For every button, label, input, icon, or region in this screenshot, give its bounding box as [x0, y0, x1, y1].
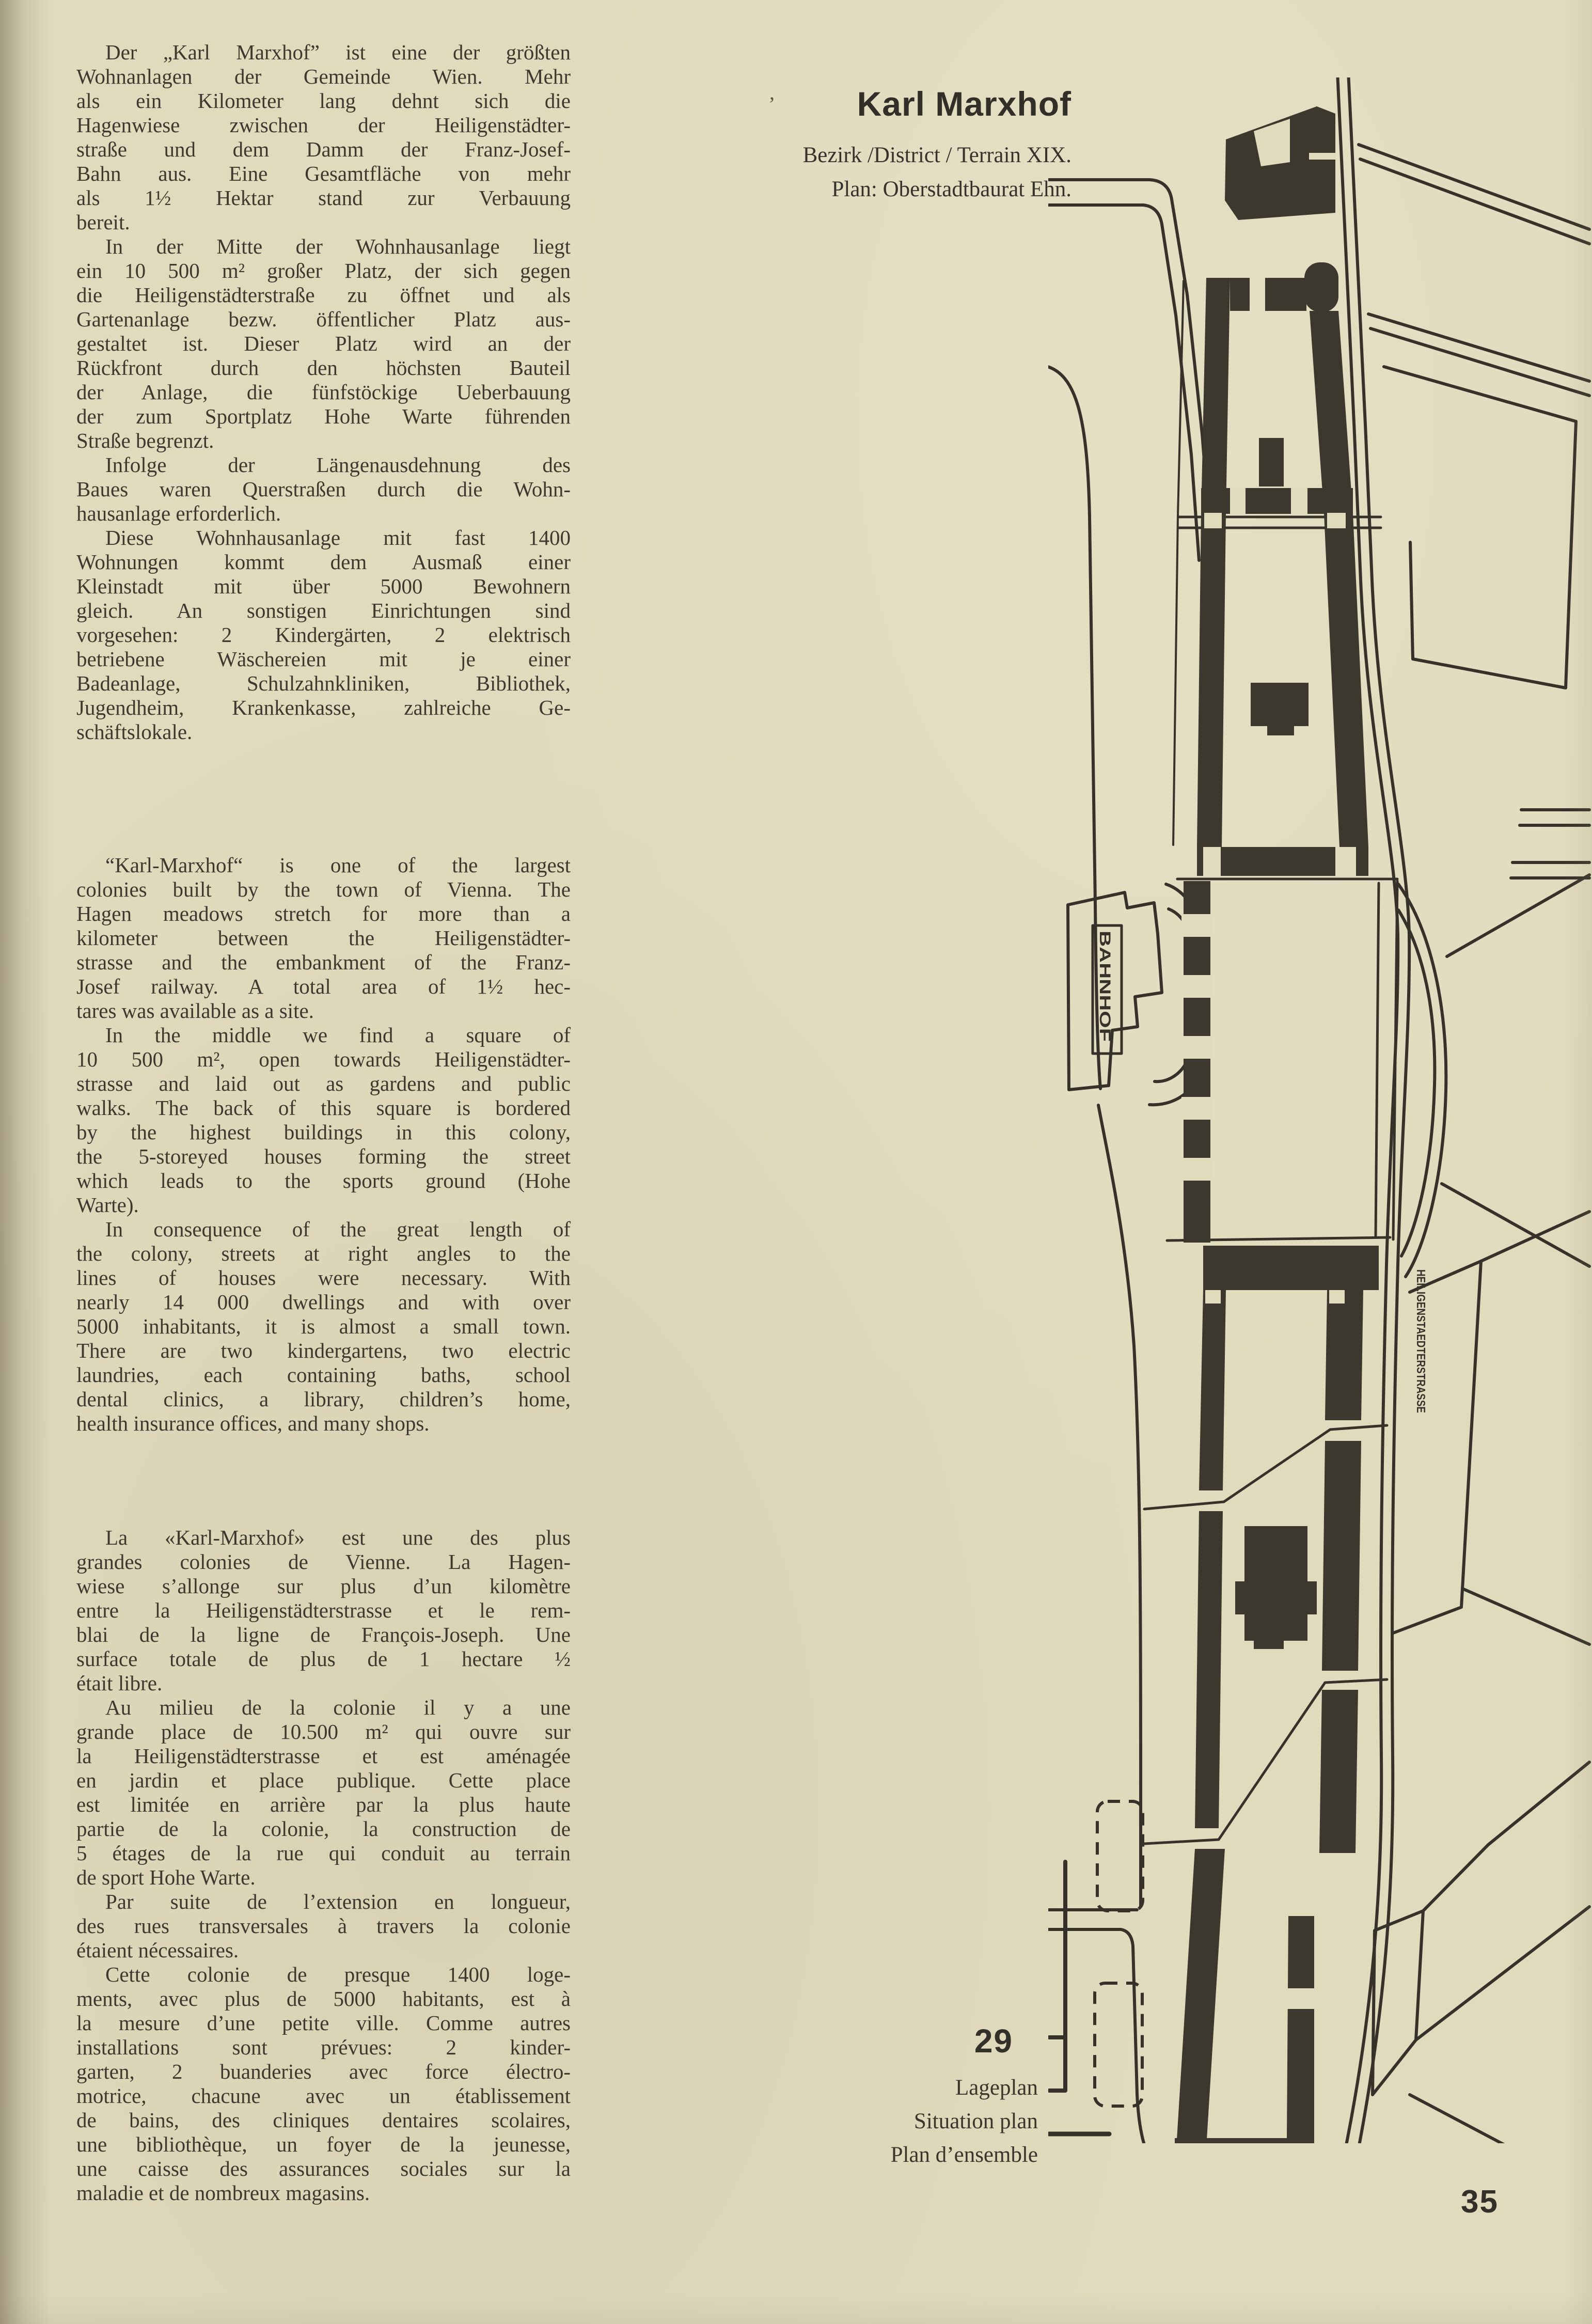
text-line: partie de la colonie, la construction de: [76, 1817, 571, 1841]
text-line: blai de la ligne de François-Joseph. Une: [76, 1623, 571, 1647]
text-block-french: La «Karl-Marxhof» est une des plusgrande…: [76, 1526, 571, 2205]
text-line: tares was available as a site.: [76, 999, 571, 1023]
text-line: wiese s’allonge sur plus d’un kilomètre: [76, 1574, 571, 1598]
karl-marx-hof-buildings: [1173, 106, 1379, 2143]
page-number: 35: [1363, 2184, 1499, 2220]
figure-number: 29: [775, 2024, 1013, 2058]
text-line: Bahn aus. Eine Gesamtfläche von mehr: [76, 162, 571, 186]
text-line: In consequence of the great length of: [76, 1217, 571, 1242]
station-label: BAHNHOF: [1096, 931, 1113, 1042]
text-line: Straße begrenzt.: [76, 429, 571, 453]
text-line: Josef railway. A total area of 1½ hec-: [76, 975, 571, 999]
text-line: garten, 2 buanderies avec force électro-: [76, 2060, 571, 2084]
text-line: ein 10 500 m² großer Platz, der sich geg…: [76, 259, 571, 283]
text-line: vorgesehen: 2 Kindergärten, 2 elektrisch: [76, 623, 571, 647]
header-district-line: Bezirk /District / Terrain XIX.: [671, 138, 1071, 172]
text-line: installations sont prévues: 2 kinder-: [76, 2035, 571, 2060]
text-line: hausanlage erforderlich.: [76, 501, 571, 526]
text-line: entre la Heiligenstädterstrasse et le re…: [76, 1598, 571, 1623]
text-line: surface totale de plus de 1 hectare ½: [76, 1647, 571, 1671]
text-line: Wohnungen kommt dem Ausmaß einer: [76, 550, 571, 574]
text-line: gleich. An sonstigen Einrichtungen sind: [76, 599, 571, 623]
text-line: betriebene Wäschereien mit je einer: [76, 647, 571, 671]
text-line: walks. The back of this square is border…: [76, 1096, 571, 1120]
text-line: der Anlage, die fünfstöckige Ueberbauung: [76, 380, 571, 404]
text-line: 5000 inhabitants, it is almost a small t…: [76, 1314, 571, 1339]
text-line: la Heiligenstädterstrasse et est aménagé…: [76, 1744, 571, 1768]
caption-bracket: [1048, 1862, 1109, 2134]
text-line: des rues transversales à travers la colo…: [76, 1914, 571, 1938]
text-line: étaient nécessaires.: [76, 1938, 571, 1962]
caption-line-fr: Plan d’ensemble: [775, 2138, 1038, 2172]
text-line: Au milieu de la colonie il y a une: [76, 1695, 571, 1720]
text-line: Rückfront durch den höchsten Bauteil: [76, 356, 571, 380]
text-line: schäftslokale.: [76, 720, 571, 744]
text-line: de sport Hohe Warte.: [76, 1865, 571, 1890]
text-line: by the highest buildings in this colony,: [76, 1120, 571, 1144]
text-line: La «Karl-Marxhof» est une des plus: [76, 1526, 571, 1550]
text-line: en jardin et place publique. Cette place: [76, 1768, 571, 1793]
text-line: Jugendheim, Krankenkasse, zahlreiche Ge-: [76, 696, 571, 720]
text-line: la mesure d’une petite ville. Comme autr…: [76, 2011, 571, 2035]
text-line: Hagenwiese zwischen der Heiligenstädter-: [76, 113, 571, 137]
text-line: est limitée en arrière par la plus haute: [76, 1793, 571, 1817]
station-building: [1068, 892, 1162, 1090]
text-line: als ein Kilometer lang dehnt sich die: [76, 89, 571, 113]
text-line: maladie et de nombreux magasins.: [76, 2181, 571, 2205]
text-line: “Karl-Marxhof“ is one of the largest: [76, 853, 571, 877]
figure-header: Karl Marxhof Bezirk /District / Terrain …: [671, 87, 1071, 207]
text-line: the 5-storeyed houses forming the street: [76, 1144, 571, 1169]
text-line: which leads to the sports ground (Hohe: [76, 1169, 571, 1193]
text-line: nearly 14 000 dwellings and with over: [76, 1290, 571, 1314]
text-line: grande place de 10.500 m² qui ouvre sur: [76, 1720, 571, 1744]
figure-caption: 29 Lageplan Situation plan Plan d’ensemb…: [775, 2024, 1038, 2172]
text-line: colonies built by the town of Vienna. Th…: [76, 877, 571, 902]
text-line: Kleinstadt mit über 5000 Bewohnern: [76, 574, 571, 599]
text-line: kilometer between the Heiligenstädter-: [76, 926, 571, 950]
text-block-german: Der „Karl Marxhof” ist eine der größtenW…: [76, 40, 571, 744]
text-line: était libre.: [76, 1671, 571, 1695]
text-block-english: “Karl-Marxhof“ is one of the largestcolo…: [76, 853, 571, 1436]
text-line: de bains, des cliniques dentaires scolai…: [76, 2108, 571, 2132]
text-line: motrice, chacune avec un établissement: [76, 2084, 571, 2108]
text-line: dental clinics, a library, children’s ho…: [76, 1387, 571, 1411]
text-line: the colony, streets at right angles to t…: [76, 1242, 571, 1266]
text-line: Infolge der Längenausdehnung des: [76, 453, 571, 477]
header-architect-line: Plan: Oberstadtbaurat Ehn.: [671, 172, 1071, 207]
text-line: Baues waren Querstraßen durch die Wohn-: [76, 477, 571, 501]
text-line: Wohnanlagen der Gemeinde Wien. Mehr: [76, 65, 571, 89]
text-line: als 1½ Hektar stand zur Verbauung: [76, 186, 571, 210]
text-line: health insurance offices, and many shops…: [76, 1411, 571, 1436]
street-label: HEILIGENSTAEDTERSTRASSE: [1414, 1269, 1428, 1413]
text-line: der zum Sportplatz Hohe Warte führenden: [76, 404, 571, 429]
text-line: In der Mitte der Wohnhausanlage liegt: [76, 234, 571, 259]
caption-line-de: Lageplan: [775, 2071, 1038, 2105]
text-line: lines of houses were necessary. With: [76, 1266, 571, 1290]
text-line: Warte).: [76, 1193, 571, 1217]
text-line: Hagen meadows stretch for more than a: [76, 902, 571, 926]
text-line: une bibliothèque, un foyer de la jeuness…: [76, 2132, 571, 2157]
text-line: une caisse des assurances sociales sur l…: [76, 2157, 571, 2181]
text-line: ments, avec plus de 5000 habitants, est …: [76, 1987, 571, 2011]
text-line: There are two kindergartens, two electri…: [76, 1339, 571, 1363]
book-page: Der „Karl Marxhof” ist eine der größtenW…: [0, 0, 1592, 2324]
text-line: In the middle we find a square of: [76, 1023, 571, 1047]
text-line: 10 500 m², open towards Heiligenstädter-: [76, 1047, 571, 1072]
text-line: Diese Wohnhausanlage mit fast 1400: [76, 526, 571, 550]
text-line: Par suite de l’extension en longueur,: [76, 1890, 571, 1914]
text-line: die Heiligenstädterstraße zu öffnet und …: [76, 283, 571, 307]
text-line: straße und dem Damm der Franz-Josef-: [76, 137, 571, 162]
text-line: Cette colonie de presque 1400 loge-: [76, 1962, 571, 1987]
caption-line-en: Situation plan: [775, 2105, 1038, 2138]
text-line: 5 étages de la rue qui conduit au terrai…: [76, 1841, 571, 1865]
site-plan-map: BAHNHOF HEILIGENSTAEDTERSTRASSE: [1048, 77, 1592, 2143]
text-line: Gartenanlage bezw. öffentlicher Platz au…: [76, 307, 571, 332]
text-line: strasse and laid out as gardens and publ…: [76, 1072, 571, 1096]
text-line: Der „Karl Marxhof” ist eine der größten: [76, 40, 571, 65]
page-title: Karl Marxhof: [671, 87, 1071, 121]
text-line: gestaltet ist. Dieser Platz wird an der: [76, 332, 571, 356]
text-line: laundries, each containing baths, school: [76, 1363, 571, 1387]
text-line: bereit.: [76, 210, 571, 234]
text-line: grandes colonies de Vienne. La Hagen-: [76, 1550, 571, 1574]
text-line: strasse and the embankment of the Franz-: [76, 950, 571, 975]
text-line: Badeanlage, Schulzahnkliniken, Bibliothe…: [76, 671, 571, 696]
